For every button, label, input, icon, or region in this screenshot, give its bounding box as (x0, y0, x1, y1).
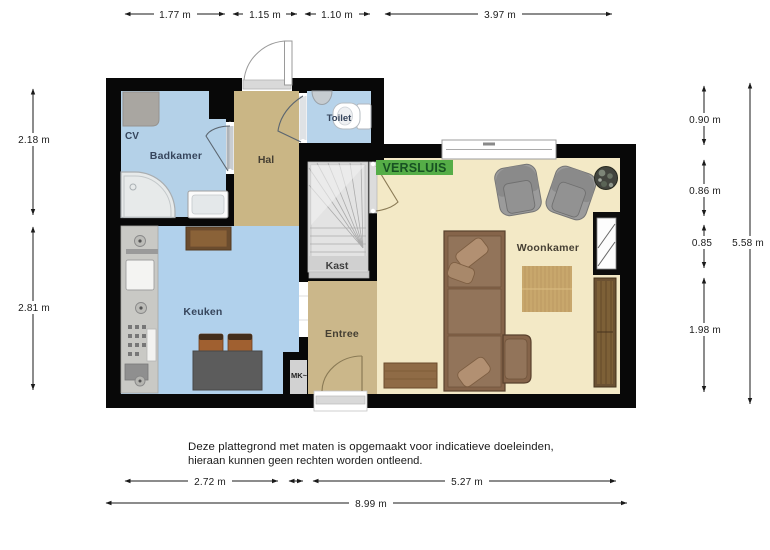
svg-text:0.90 m: 0.90 m (689, 115, 721, 126)
svg-text:Kast: Kast (326, 260, 349, 272)
svg-text:Deze plattegrond met maten is: Deze plattegrond met maten is opgemaakt … (188, 441, 554, 453)
svg-text:0.85: 0.85 (692, 238, 713, 249)
svg-text:1.15 m: 1.15 m (249, 10, 281, 21)
svg-text:1.98 m: 1.98 m (689, 325, 721, 336)
svg-text:3.97 m: 3.97 m (484, 10, 516, 21)
svg-text:5.58 m: 5.58 m (732, 238, 764, 249)
svg-text:hieraan kunnen geen rechten wo: hieraan kunnen geen rechten worden ontle… (188, 455, 423, 467)
svg-text:2.72 m: 2.72 m (194, 477, 226, 488)
svg-text:2.18 m: 2.18 m (18, 135, 50, 146)
svg-text:8.99 m: 8.99 m (355, 499, 387, 510)
svg-text:Hal: Hal (258, 154, 274, 166)
svg-text:1.77 m: 1.77 m (159, 10, 191, 21)
svg-text:5.27 m: 5.27 m (451, 477, 483, 488)
svg-text:Keuken: Keuken (183, 306, 222, 318)
svg-text:Woonkamer: Woonkamer (517, 242, 580, 254)
svg-text:2.81 m: 2.81 m (18, 303, 50, 314)
svg-text:MK~: MK~ (291, 371, 308, 380)
svg-text:VERSLUIS: VERSLUIS (382, 161, 446, 175)
svg-text:1.10 m: 1.10 m (321, 10, 353, 21)
svg-text:Toilet: Toilet (327, 113, 352, 124)
svg-text:Entree: Entree (325, 328, 359, 340)
svg-text:CV: CV (125, 131, 139, 142)
svg-text:Badkamer: Badkamer (150, 150, 202, 162)
svg-text:0.86 m: 0.86 m (689, 186, 721, 197)
